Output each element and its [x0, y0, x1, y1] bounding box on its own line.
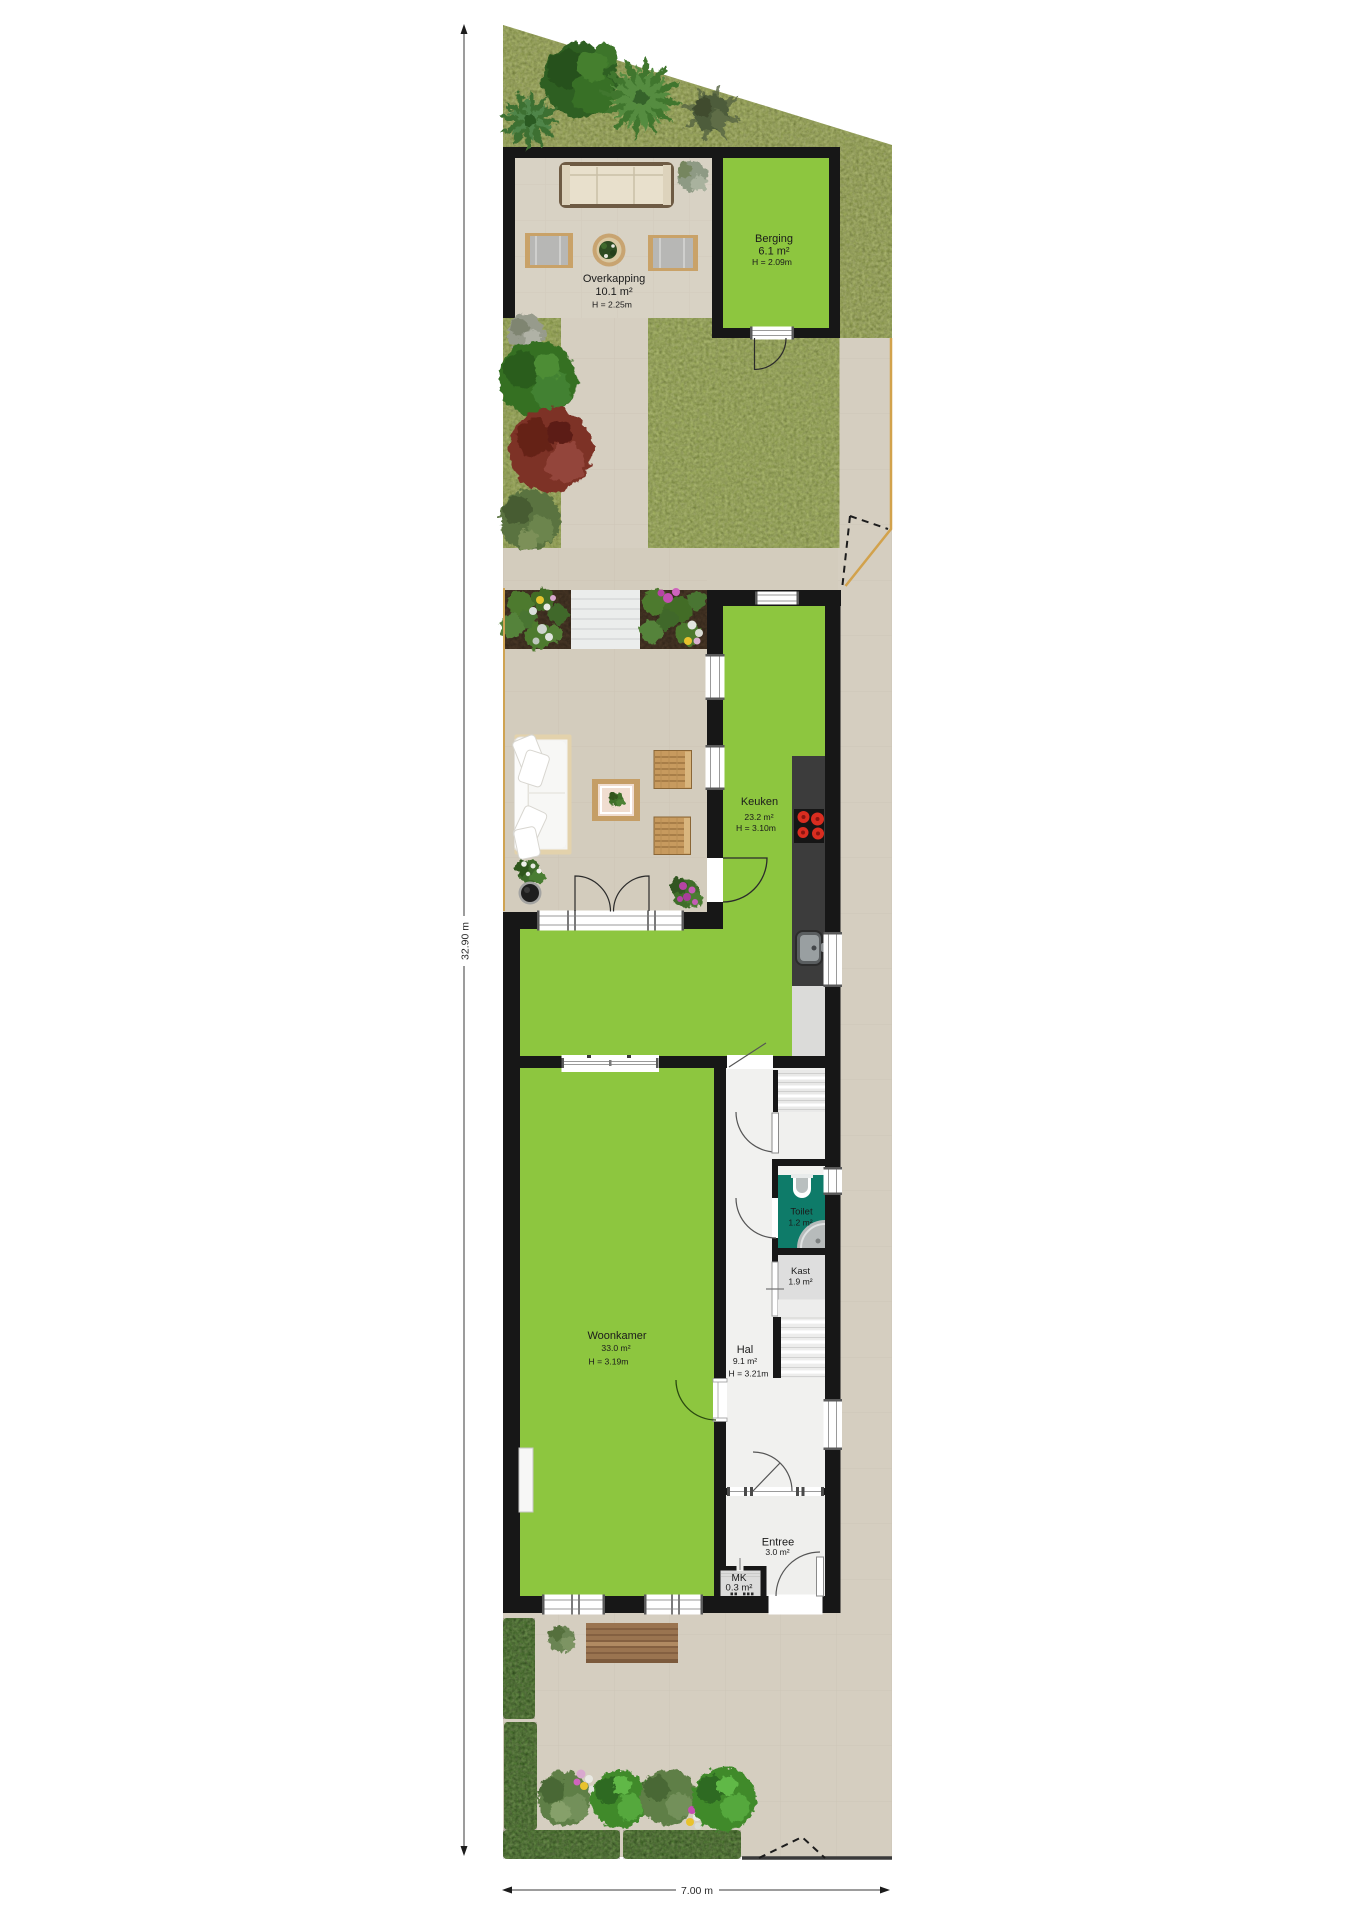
- svg-text:H = 2.25m: H = 2.25m: [592, 300, 632, 310]
- svg-text:32.90 m: 32.90 m: [460, 922, 472, 960]
- svg-text:10.1 m²: 10.1 m²: [595, 286, 633, 298]
- svg-text:H = 2.09m: H = 2.09m: [752, 257, 792, 267]
- svg-text:Toilet: Toilet: [790, 1207, 813, 1218]
- svg-text:7.00 m: 7.00 m: [681, 1885, 713, 1897]
- svg-text:Woonkamer: Woonkamer: [587, 1330, 646, 1342]
- svg-text:Hal: Hal: [737, 1344, 754, 1356]
- svg-text:0.3 m²: 0.3 m²: [726, 1583, 753, 1594]
- svg-text:23.2 m²: 23.2 m²: [744, 812, 773, 822]
- svg-text:33.0 m²: 33.0 m²: [601, 1343, 630, 1353]
- svg-text:9.1 m²: 9.1 m²: [733, 1356, 757, 1366]
- svg-text:Kast: Kast: [791, 1266, 810, 1277]
- svg-text:3.0 m²: 3.0 m²: [765, 1547, 789, 1557]
- svg-text:H = 3.10m: H = 3.10m: [736, 823, 776, 833]
- svg-text:1.9 m²: 1.9 m²: [788, 1277, 812, 1287]
- svg-text:H = 3.19m: H = 3.19m: [589, 1357, 629, 1367]
- svg-text:Overkapping: Overkapping: [583, 273, 645, 285]
- svg-text:6.1 m²: 6.1 m²: [758, 246, 790, 258]
- svg-text:1.2 m²: 1.2 m²: [788, 1218, 812, 1228]
- svg-text:Berging: Berging: [755, 233, 793, 245]
- svg-text:H = 3.21m: H = 3.21m: [729, 1369, 769, 1379]
- svg-text:Keuken: Keuken: [741, 796, 778, 808]
